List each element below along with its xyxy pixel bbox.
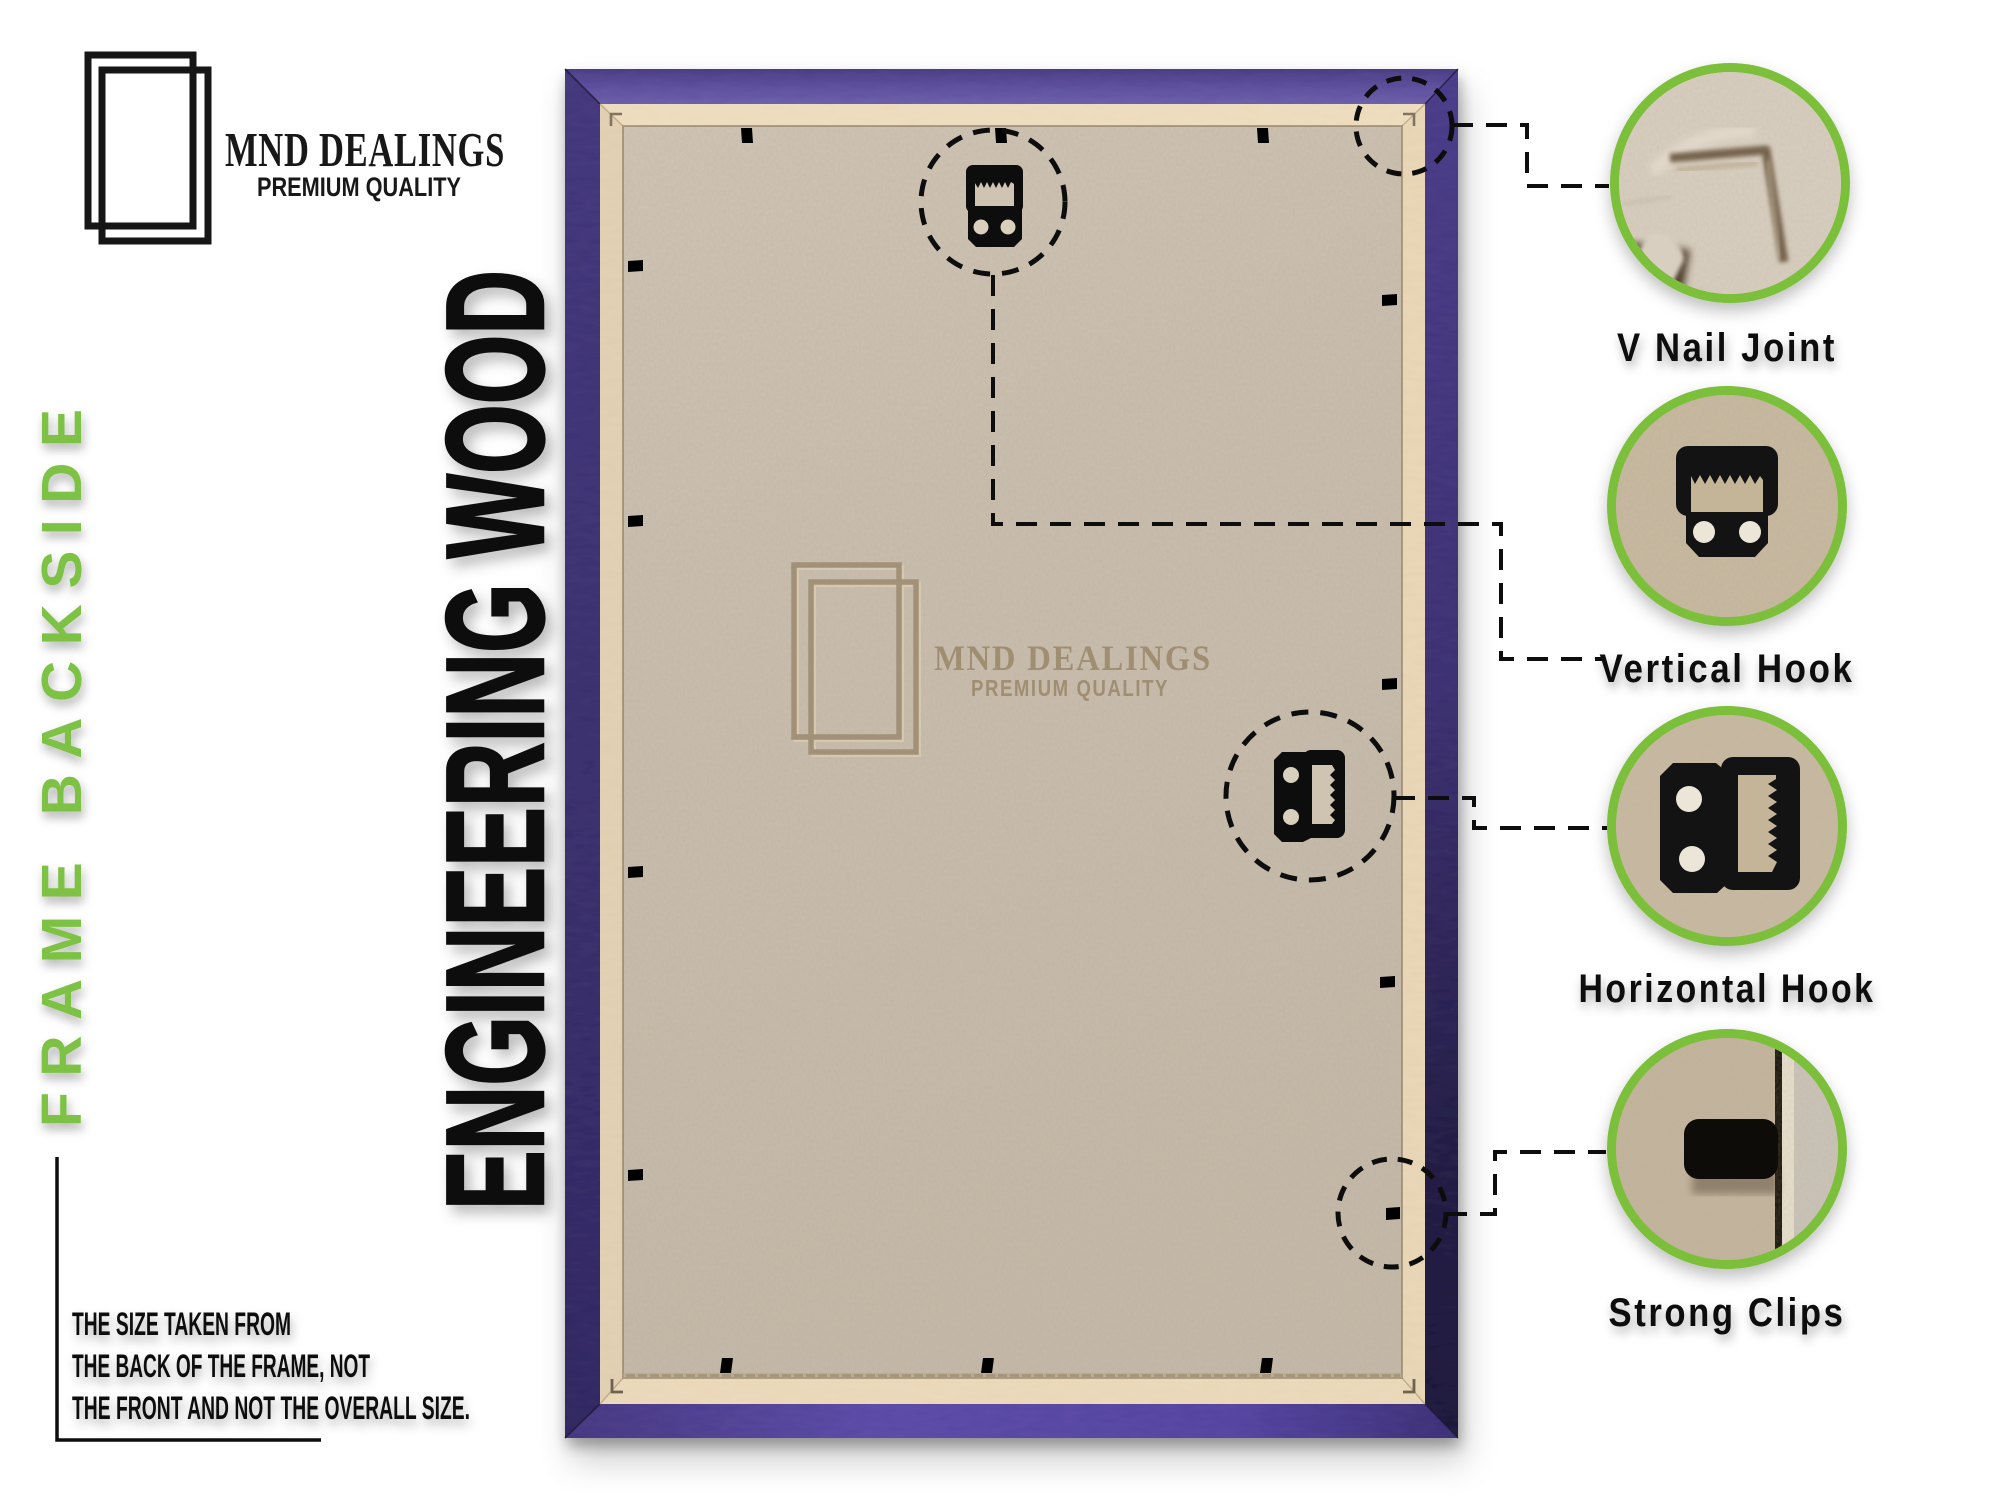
svg-text:THE BACK OF THE FRAME, NOT: THE BACK OF THE FRAME, NOT bbox=[72, 1348, 370, 1384]
svg-text:MND DEALINGS: MND DEALINGS bbox=[934, 638, 1212, 678]
svg-text:V Nail Joint: V Nail Joint bbox=[1617, 326, 1837, 370]
svg-text:PREMIUM QUALITY: PREMIUM QUALITY bbox=[971, 675, 1169, 701]
svg-text:FRAME BACKSIDE: FRAME BACKSIDE bbox=[30, 401, 94, 1127]
svg-text:ENGINEERING WOOD: ENGINEERING WOOD bbox=[418, 270, 573, 1210]
svg-text:Vertical Hook: Vertical Hook bbox=[1600, 647, 1855, 691]
svg-text:THE FRONT AND NOT THE OVERALL: THE FRONT AND NOT THE OVERALL SIZE. bbox=[72, 1390, 470, 1426]
svg-text:Horizontal Hook: Horizontal Hook bbox=[1579, 967, 1876, 1011]
svg-text:PREMIUM QUALITY: PREMIUM QUALITY bbox=[257, 172, 461, 202]
svg-text:MND DEALINGS: MND DEALINGS bbox=[225, 122, 505, 177]
svg-text:THE SIZE TAKEN FROM: THE SIZE TAKEN FROM bbox=[72, 1306, 291, 1342]
svg-text:Strong Clips: Strong Clips bbox=[1609, 1291, 1846, 1335]
